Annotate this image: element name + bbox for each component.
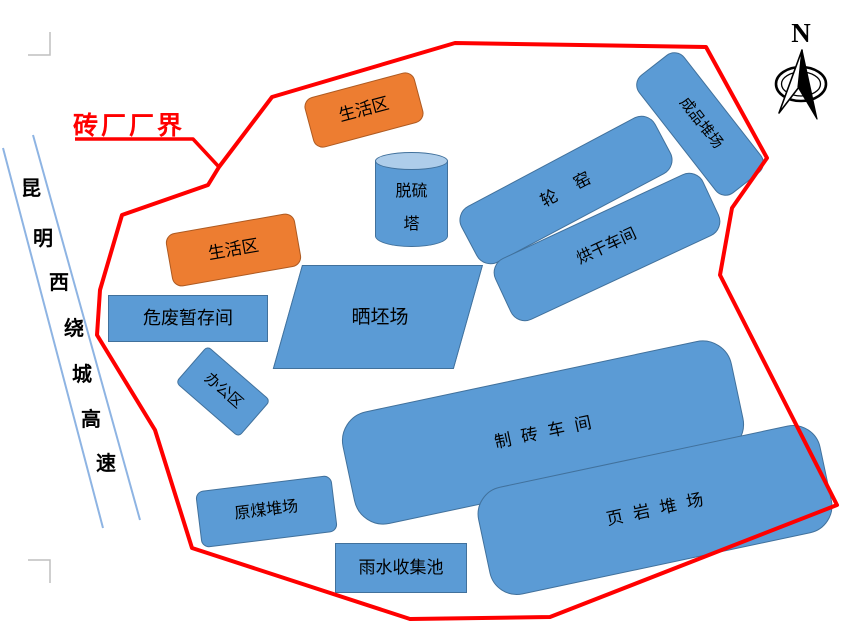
compass-rose-icon [776,50,826,119]
area-rainwater-collection-pool: 雨水收集池 [335,543,467,593]
road-char: 西 [48,266,70,295]
area-label: 雨水收集池 [359,558,444,578]
road-char: 昆 [20,172,42,201]
factory-boundary-label: 砖厂厂界 [73,106,185,142]
desulfurization-tower-top [375,152,448,170]
area-living-top: 生活区 [302,70,426,150]
area-living-left: 生活区 [164,212,302,288]
area-hazardous-waste-room: 危废暂存间 [108,295,268,342]
area-label: 轮窑 [519,159,612,221]
tower-label-line1: 脱硫 [375,175,448,208]
compass-north-label: N [786,18,816,49]
area-label: 原煤堆场 [234,498,300,524]
area-label: 页岩堆场 [595,488,715,532]
road-char: 绕 [63,312,85,341]
road-char: 高 [80,403,102,432]
boundary-label-leader [75,139,219,167]
area-label: 成品堆场 [675,95,726,153]
tower-label-line2: 塔 [375,208,448,241]
desulfurization-tower-label: 脱硫 塔 [375,175,448,241]
area-label: 危废暂存间 [143,308,233,329]
area-office: 办公区 [175,345,271,437]
area-label: 制砖车间 [483,411,603,455]
corner-mark-bottom-left [28,560,50,583]
area-label: 生活区 [207,236,261,264]
brick-blank-drying-field-label: 晒坯场 [295,302,465,329]
site-plan-canvas: 昆 明 西 绕 城 高 速 砖厂厂界 N 生活区 生活区 脱硫 塔 轮窑 成品堆… [0,0,844,623]
road-char: 城 [71,358,93,387]
area-label: 晒坯场 [351,307,408,328]
road-char: 速 [95,447,117,476]
area-label: 烘干车间 [574,225,640,269]
road-line-left [3,148,103,528]
area-label: 办公区 [200,370,245,413]
road-char: 明 [32,222,54,251]
area-label: 生活区 [337,94,391,126]
corner-mark-top-left [28,32,50,55]
area-raw-coal-yard: 原煤堆场 [195,475,338,548]
